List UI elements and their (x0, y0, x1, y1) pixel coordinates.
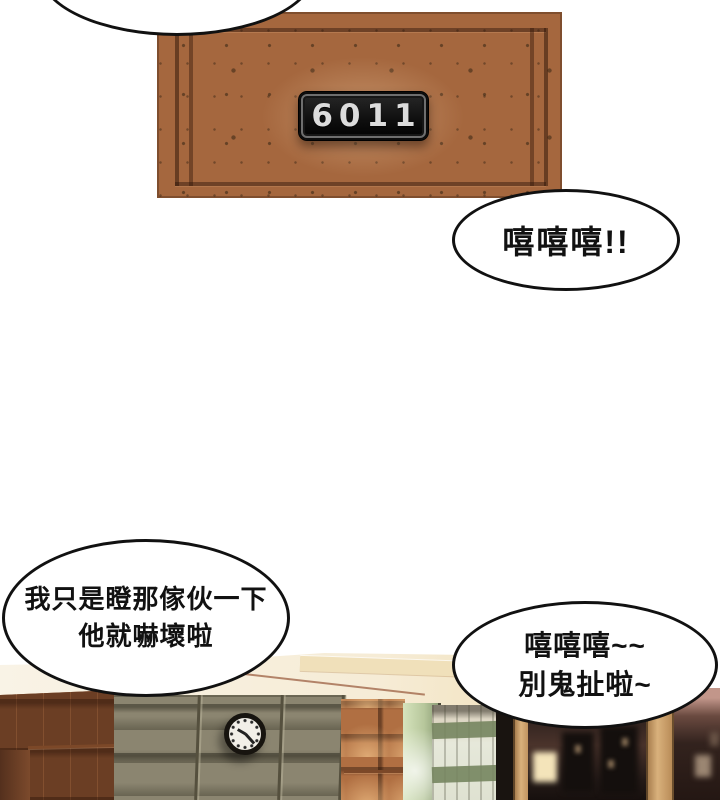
door-panel: 6011 (157, 12, 562, 198)
speech-bubble-giggle: 嘻嘻嘻!! (452, 189, 680, 291)
comic-page: 6011 (0, 0, 720, 800)
bubble-text-line: 別鬼扯啦~ (518, 665, 651, 704)
window-light (533, 752, 557, 782)
glass-reflection (695, 755, 711, 777)
stone-seam (277, 695, 284, 800)
bubble-text-line: 他就嚇壞啦 (78, 618, 213, 655)
door-groove-right (530, 28, 548, 186)
door-groove-bottom (175, 182, 546, 186)
bubble-text-line: 嘻嘻嘻~~ (524, 626, 646, 665)
shower-curtain (432, 705, 498, 800)
wall-clock (224, 713, 266, 755)
corner-shadow (0, 750, 30, 800)
bubble-text-line: 我只是瞪那傢伙一下 (24, 581, 267, 618)
bubble-text: 嘻嘻嘻!! (502, 217, 629, 263)
speech-bubble-tease: 嘻嘻嘻~~ 別鬼扯啦~ (452, 601, 718, 729)
brown-tile-wall-right (341, 699, 405, 800)
glass-reflection (710, 732, 719, 746)
curtain-stripe (432, 765, 499, 783)
city-building-silhouette (562, 732, 594, 792)
tile-grout-line (344, 770, 405, 773)
room-number-plate: 6011 (298, 91, 429, 141)
clock-minute-hand (244, 733, 255, 744)
door-groove-left (175, 28, 193, 186)
stone-seam (194, 695, 201, 800)
speech-bubble-brag: 我只是瞪那傢伙一下 他就嚇壞啦 (2, 539, 290, 697)
city-light (622, 738, 628, 746)
city-light (608, 760, 614, 768)
room-number-text: 6011 (305, 98, 421, 134)
city-building-silhouette (600, 726, 638, 794)
curtain-stripe (432, 721, 499, 739)
city-light (575, 745, 581, 753)
